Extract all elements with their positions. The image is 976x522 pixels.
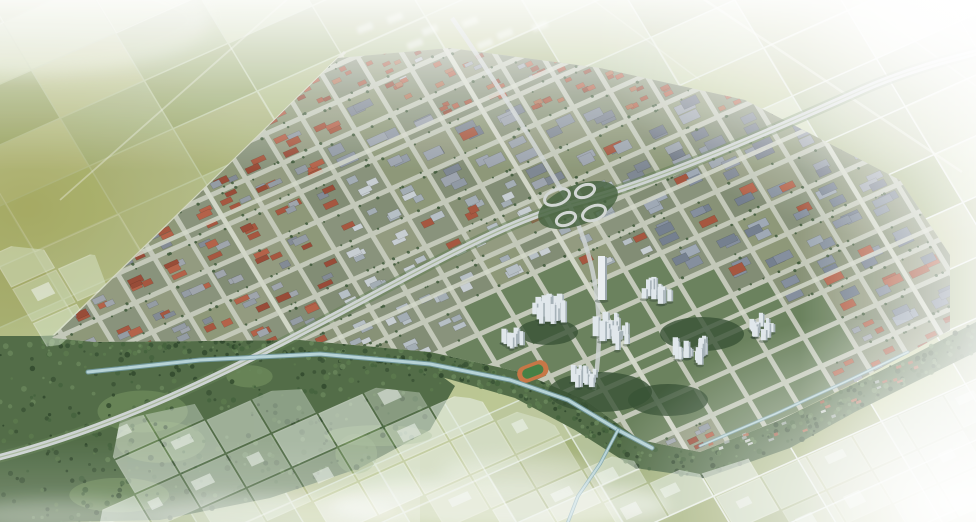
fog-haze-overlay: [0, 0, 976, 522]
aerial-city-masterplan-rendering: [0, 0, 976, 522]
rendering-canvas: [0, 0, 976, 522]
